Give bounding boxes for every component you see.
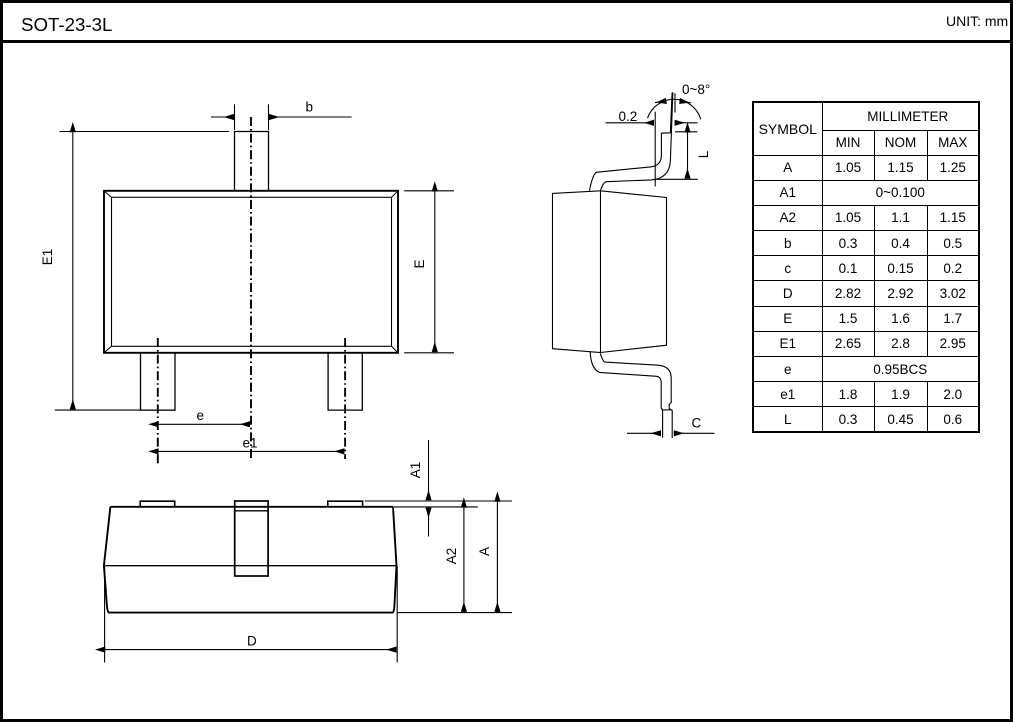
svg-text:E1: E1 bbox=[40, 249, 55, 266]
svg-text:A2: A2 bbox=[444, 548, 459, 565]
svg-text:e1: e1 bbox=[243, 436, 258, 451]
svg-text:0.2: 0.2 bbox=[619, 109, 638, 124]
svg-text:D: D bbox=[247, 634, 257, 649]
svg-text:L: L bbox=[696, 150, 711, 158]
svg-text:A: A bbox=[477, 547, 492, 556]
svg-text:E: E bbox=[412, 259, 427, 268]
svg-text:0~8°: 0~8° bbox=[682, 82, 710, 97]
svg-text:C: C bbox=[692, 416, 702, 431]
svg-text:b: b bbox=[306, 100, 314, 115]
svg-text:e: e bbox=[197, 408, 205, 423]
svg-text:A1: A1 bbox=[408, 462, 423, 479]
